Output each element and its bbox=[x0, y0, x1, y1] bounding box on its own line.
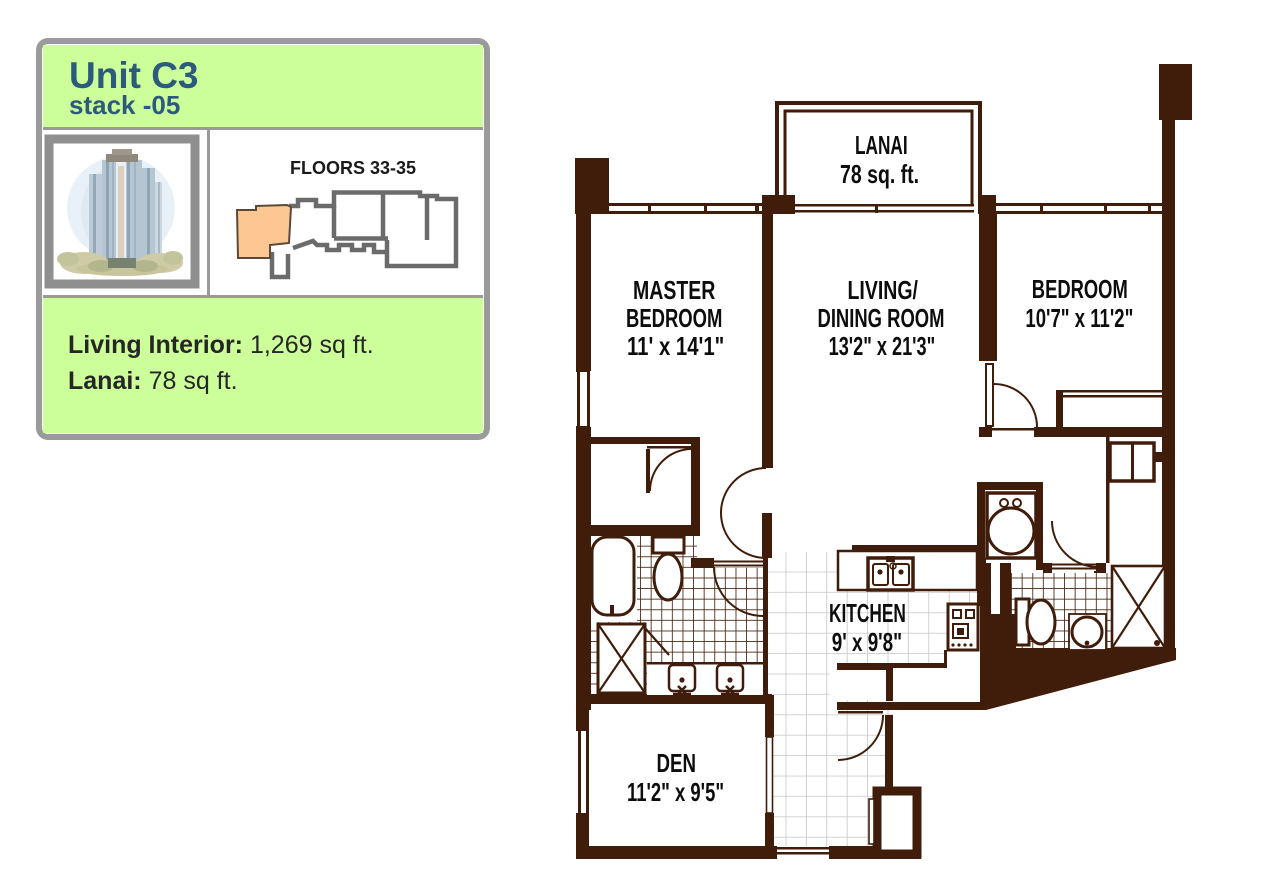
svg-text:13'2" x 21'3": 13'2" x 21'3" bbox=[829, 332, 936, 361]
svg-text:MASTER: MASTER bbox=[633, 275, 715, 304]
svg-text:LANAI: LANAI bbox=[855, 131, 908, 160]
svg-text:LIVING/: LIVING/ bbox=[848, 275, 919, 304]
svg-text:BEDROOM: BEDROOM bbox=[1032, 275, 1128, 304]
svg-text:11'2" x 9'5": 11'2" x 9'5" bbox=[627, 778, 724, 807]
svg-text:DEN: DEN bbox=[657, 749, 697, 778]
svg-text:stack -05: stack -05 bbox=[69, 90, 180, 120]
svg-text:11' x 14'1": 11' x 14'1" bbox=[627, 332, 724, 361]
svg-text:BEDROOM: BEDROOM bbox=[626, 304, 722, 333]
svg-text:KITCHEN: KITCHEN bbox=[829, 599, 906, 628]
svg-text:10'7" x 11'2": 10'7" x 11'2" bbox=[1025, 304, 1133, 333]
svg-text:FLOORS 33-35: FLOORS 33-35 bbox=[290, 158, 416, 178]
svg-text:Living Interior: 1,269 sq ft.: Living Interior: 1,269 sq ft. bbox=[68, 331, 374, 359]
svg-text:78 sq. ft.: 78 sq. ft. bbox=[840, 159, 919, 188]
svg-text:Lanai: 78 sq ft.: Lanai: 78 sq ft. bbox=[68, 367, 238, 395]
svg-text:9' x 9'8": 9' x 9'8" bbox=[832, 628, 902, 656]
svg-text:DINING ROOM: DINING ROOM bbox=[818, 304, 945, 333]
